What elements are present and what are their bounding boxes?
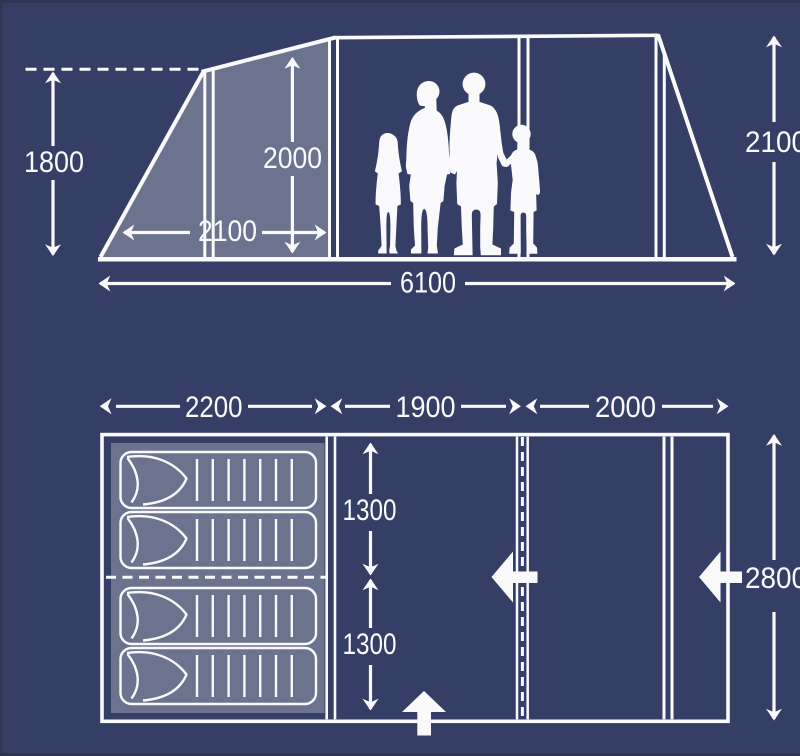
svg-text:1900: 1900 bbox=[396, 391, 456, 424]
svg-text:6100: 6100 bbox=[400, 267, 456, 300]
svg-text:2000: 2000 bbox=[595, 391, 656, 424]
svg-text:2100: 2100 bbox=[745, 126, 800, 159]
svg-text:1800: 1800 bbox=[24, 146, 84, 179]
svg-text:2100: 2100 bbox=[198, 215, 257, 248]
svg-text:1300: 1300 bbox=[343, 494, 397, 527]
svg-text:2000: 2000 bbox=[263, 142, 322, 175]
svg-text:2200: 2200 bbox=[185, 391, 243, 424]
svg-text:2800: 2800 bbox=[745, 562, 800, 595]
svg-text:1300: 1300 bbox=[343, 628, 397, 661]
